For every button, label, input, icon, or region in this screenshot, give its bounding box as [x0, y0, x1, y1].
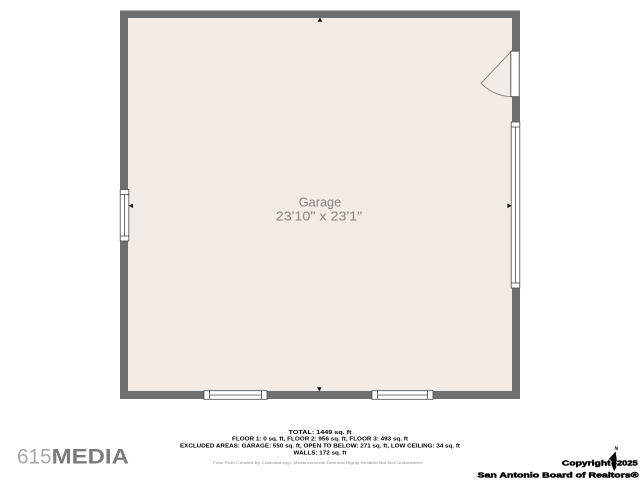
svg-text:615: 615 — [17, 445, 52, 468]
svg-text:2025: 2025 — [617, 458, 639, 467]
svg-text:EXCLUDED AREAS: GARAGE: 550 sq: EXCLUDED AREAS: GARAGE: 550 sq. ft, OPEN… — [180, 443, 460, 449]
svg-text:Floor Plan Created By Cubicasa: Floor Plan Created By Cubicasa App. Meas… — [213, 461, 423, 465]
svg-text:23'10" x 23'1": 23'10" x 23'1" — [276, 209, 363, 224]
svg-text:FLOOR 1: 0 sq. ft, FLOOR 2: 95: FLOOR 1: 0 sq. ft, FLOOR 2: 956 sq. ft, … — [232, 436, 408, 442]
svg-text:Copyright: Copyright — [562, 458, 611, 467]
svg-text:Garage: Garage — [299, 194, 341, 209]
svg-text:San Antonio Board of Realtors®: San Antonio Board of Realtors® — [478, 471, 640, 480]
svg-text:TOTAL: 1449 sq. ft: TOTAL: 1449 sq. ft — [289, 430, 352, 436]
svg-text:WALLS: 172 sq. ft: WALLS: 172 sq. ft — [294, 450, 347, 456]
svg-text:MEDIA: MEDIA — [52, 445, 129, 468]
